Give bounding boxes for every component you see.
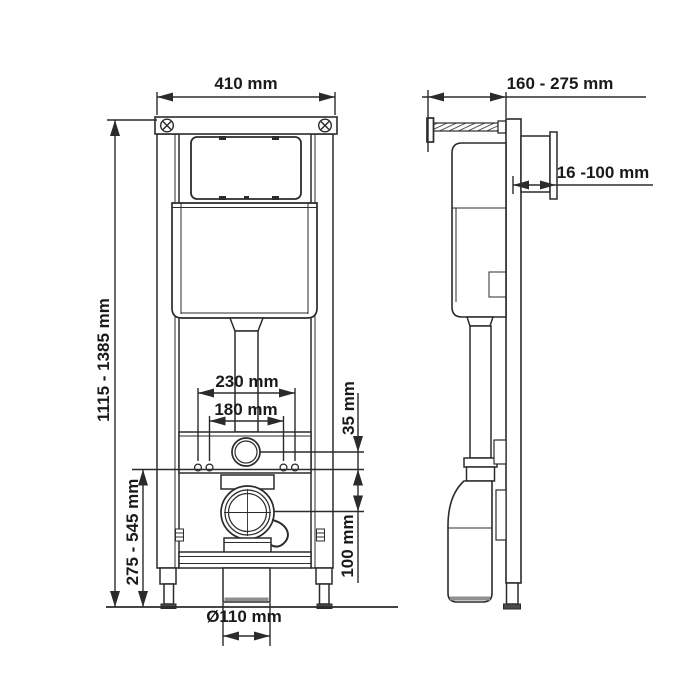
dim-fixing-inner: 180 mm xyxy=(146,400,346,420)
pipe-bracket xyxy=(494,440,506,464)
cistern-side xyxy=(452,143,506,317)
dim-frame-width: 410 mm xyxy=(146,74,346,94)
bolt-icon xyxy=(319,119,332,132)
rail-clip xyxy=(317,529,325,541)
dim-frame-height: 1115 - 1385 mm xyxy=(94,260,114,460)
technical-drawing-page: 410 mm 160 - 275 mm 16 -100 mm 1115 - 13… xyxy=(0,0,700,700)
flush-pipe-side xyxy=(464,317,497,481)
front-view xyxy=(155,117,337,609)
dim-depth-range: 160 - 275 mm xyxy=(460,74,660,94)
access-panel xyxy=(191,136,301,200)
waste-outlet-pipe xyxy=(223,568,270,602)
dim-fixing-outer: 230 mm xyxy=(147,372,347,392)
pipe-bracket xyxy=(496,490,506,540)
side-view xyxy=(427,118,557,609)
waste-elbow-side xyxy=(448,481,492,602)
dim-outlet-diameter: Ø110 mm xyxy=(144,607,344,627)
flush-outlet-hole xyxy=(232,438,260,466)
foot-side xyxy=(504,583,521,609)
top-plate xyxy=(155,117,337,134)
dim-wall-distance: 16 -100 mm xyxy=(503,163,700,183)
lower-crossbar xyxy=(179,552,311,568)
wall-anchor-rod xyxy=(427,118,506,142)
cistern-front xyxy=(172,203,317,318)
dim-lower-height: 275 - 545 mm xyxy=(123,432,143,632)
waste-bend xyxy=(221,475,288,553)
bolt-icon xyxy=(161,119,174,132)
rail-clip xyxy=(176,529,184,541)
